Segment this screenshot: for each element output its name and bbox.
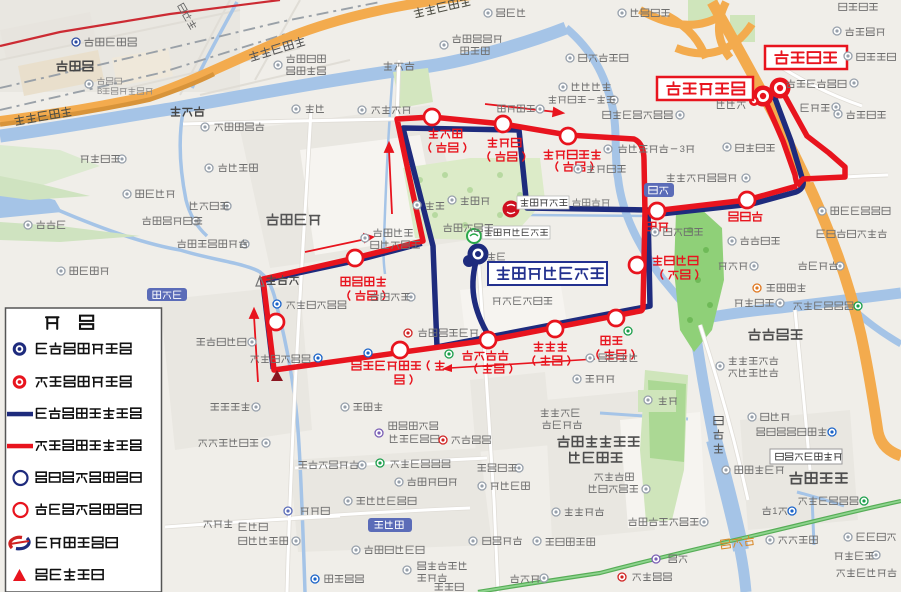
svg-text:1: 1 — [772, 506, 777, 517]
svg-text:B: B — [97, 87, 102, 96]
svg-text:3: 3 — [680, 144, 685, 155]
